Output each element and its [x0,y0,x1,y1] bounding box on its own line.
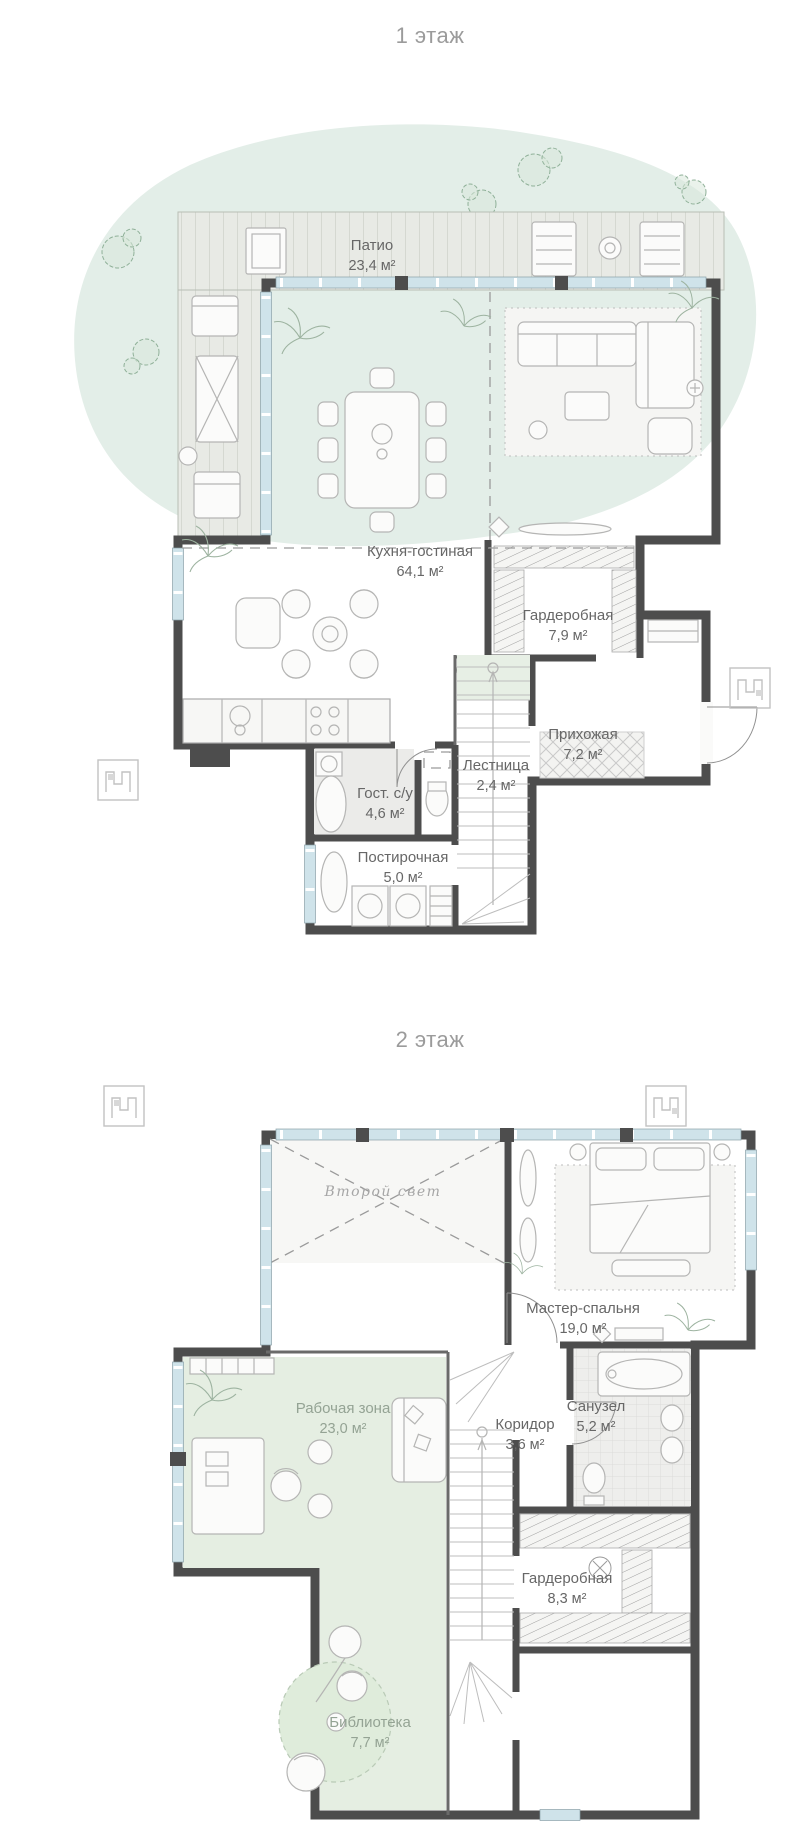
patio-table [599,237,621,259]
room-label-wardrobe-1: Гардеробная 7,9 м² [523,605,614,647]
room-label-kitchen-living: Кухня-гостиная 64,1 м² [367,541,473,583]
brand-watermark-icon [646,1086,686,1126]
floorplan-document: 1 этаж Патио 23,4 м² Кухня-гостиная 64,1… [0,0,800,1832]
brand-watermark-icon [730,668,770,708]
bathtub [316,776,346,832]
bench [612,1260,690,1276]
wall-pier [190,741,230,767]
laundry-sink [321,852,347,912]
room-label-master-bedroom: Мастер-спальня 19,0 м² [526,1298,640,1340]
shelf [424,752,450,768]
room-label-hallway: Прихожая 7,2 м² [548,724,618,766]
sideboard [519,523,611,535]
cistern [584,1496,604,1505]
washbasin [661,1405,683,1431]
lounge-chair [640,222,684,276]
tub-chair [287,1753,325,1791]
pillow [596,1148,646,1170]
lounge-chair [532,222,576,276]
floor1-plan [74,124,770,930]
cabinet [520,1150,536,1206]
staircase [450,1352,514,1724]
floor1-title: 1 этаж [396,23,465,49]
sofa [518,322,636,366]
room-label-work-zone: Рабочая зона 23,0 м² [296,1398,391,1440]
coffee-table [565,392,609,420]
armchair [192,296,238,336]
armchair [194,472,240,518]
room-label-laundry: Постирочная 5,0 м² [358,847,449,889]
entry-door [700,702,757,764]
arc-lamp [329,1626,361,1658]
guest-chair [308,1440,332,1464]
washbasin [661,1437,683,1463]
guest-chair [308,1494,332,1518]
lounge-corner [236,590,378,678]
floorplan-drawing [0,0,800,1832]
room-label-library: Библиотека 7,7 м² [329,1712,411,1754]
tub-chair [337,1671,367,1701]
room-label-stairs: Лестница 2,4 м² [463,755,529,797]
floor2-title: 2 этаж [396,1027,465,1053]
toilet [583,1463,605,1493]
pillow [654,1148,704,1170]
room-label-patio: Патио 23,4 м² [348,235,395,277]
room-label-void: Второй свет [325,1183,442,1203]
washer [352,886,388,926]
cabinet [520,1218,536,1262]
armchair [648,418,692,454]
room-label-bathroom: Санузел 5,2 м² [567,1396,625,1438]
cistern [428,782,446,791]
room-label-corridor: Коридор 3,6 м² [495,1414,554,1456]
nightstand [714,1144,730,1160]
side-table [529,421,547,439]
side-table [179,447,197,465]
dryer [390,886,426,926]
armchair [236,598,280,648]
chaise [636,322,694,408]
nightstand [570,1144,586,1160]
office-chair [271,1471,301,1501]
room-label-wardrobe-2: Гардеробная 8,3 м² [522,1568,613,1610]
room-label-guest-bathroom: Гост. с/у 4,6 м² [357,783,413,825]
brand-watermark-icon [98,760,138,800]
brand-watermark-icon [104,1086,144,1126]
kitchen-counter [183,699,390,743]
